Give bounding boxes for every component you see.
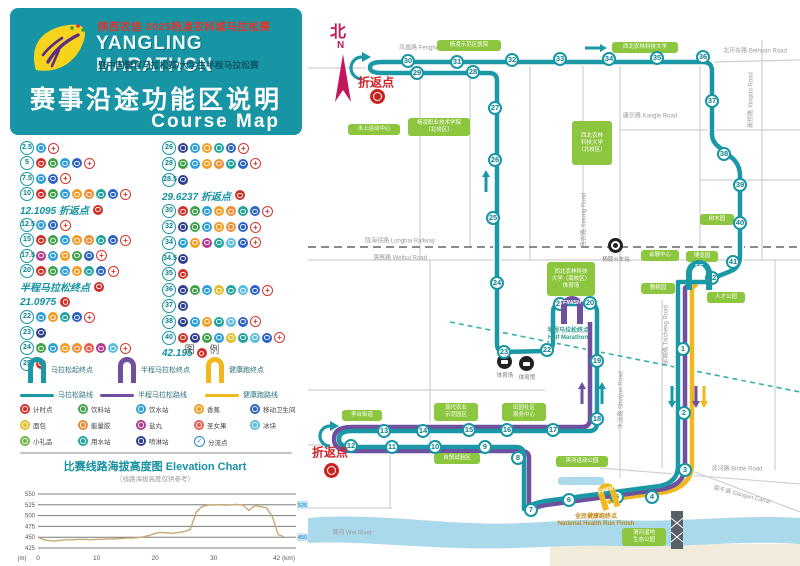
km-point-23: 23 [497, 345, 511, 359]
poi-label-box: 西北农林科技大学（南校区）体育场 [547, 262, 595, 296]
km-point-9: 9 [478, 440, 492, 454]
poi-label-line: 教稼园 [643, 285, 673, 292]
poi-label-line: 会展中心 [643, 252, 677, 259]
km-point-14: 14 [416, 424, 430, 438]
road-label: 邰城路 Taicheng Road [661, 305, 670, 365]
poi-label-line: 科技大学 [574, 140, 610, 147]
poi-label-line: 杨凌示范区医院 [439, 42, 499, 49]
km-point-17: 17 [546, 423, 560, 437]
km-point-31: 31 [450, 55, 464, 69]
poi-label-line: 杨凌职业技术学院 [410, 120, 468, 127]
finish-arch-text: S/F [687, 264, 711, 270]
north-arrow-icon [330, 52, 356, 104]
map-overlay: 水上运动中心杨凌职业技术学院（北校区）杨凌示范区医院西北农林科技大学西北农林科技… [0, 0, 800, 566]
km-point-35: 35 [650, 51, 664, 65]
poi-label-line: 生态公园 [624, 537, 664, 544]
poi-label-line: 大学（南校区） [549, 276, 593, 283]
north-label-n: N [337, 40, 344, 51]
poi-label-line: 人才公园 [709, 294, 743, 301]
km-point-41: 41 [726, 255, 740, 269]
km-point-34: 34 [602, 52, 616, 66]
poi-label-line: 自贸试验区 [436, 455, 478, 462]
finish-arch: FINISH [595, 481, 620, 511]
km-point-7: 7 [524, 503, 538, 517]
km-point-16: 16 [500, 423, 514, 437]
poi-label-box: 会展中心 [641, 250, 679, 261]
finish-arch: FINISH [561, 296, 583, 324]
road-label: 高干渠 Gaogan Canal [713, 483, 772, 506]
stadium-icon [519, 356, 534, 371]
km-point-28: 28 [466, 65, 480, 79]
turnaround-label: 折返点 [312, 444, 348, 461]
km-point-19: 19 [590, 354, 604, 368]
poi-label-line: 李台街道 [344, 412, 380, 419]
poi-label-line: 西北农林科技大学 [614, 44, 676, 51]
course-map-poster: 陕西农信·2025杨凌农科城马拉松赛 YANGLING MARATHON 暨中国… [0, 0, 800, 566]
poi-label-line: 博览园 [688, 253, 716, 260]
poi-label-line: 田园社区 [504, 405, 544, 412]
poi-label-box: 西北农林科技大学（北校区） [572, 121, 612, 165]
road-label: 西农路 Xinong Road [579, 193, 588, 247]
poi-label-box: 树木园 [700, 214, 734, 225]
poi-icon-label: 体育馆 [519, 373, 536, 381]
km-point-39: 39 [733, 178, 747, 192]
km-point-29: 29 [410, 66, 424, 80]
km-point-24: 24 [490, 276, 504, 290]
road-label: 北环东路 Beihuan Road [723, 46, 787, 55]
health-run-finish-label: 全民健康跑终点National Health Run Finish [558, 514, 634, 528]
poi-label-line: 西北农林 [574, 133, 610, 140]
turnaround-label: 折返点 [358, 74, 394, 91]
km-point-32: 32 [505, 53, 519, 67]
poi-label-box: 滨河运动公园 [556, 456, 608, 467]
km-point-40: 40 [733, 216, 747, 230]
poi-label-box: 自贸试验区 [434, 453, 480, 464]
finish-arch: S/F [686, 260, 712, 290]
km-point-11: 11 [385, 440, 399, 454]
poi-label-box: 杨凌示范区医院 [437, 40, 501, 51]
half-finish-line: Half Marathon [547, 335, 589, 342]
poi-label-box: 渭河湿地生态公园 [622, 528, 666, 546]
road-label: 滨河路 Binhe Road [711, 464, 762, 473]
finish-arch-text: FINISH [562, 300, 582, 306]
km-point-20: 20 [583, 296, 597, 310]
turnaround-timing-icon [324, 463, 339, 478]
road-label: 陇海铁路 Longhai Railway [365, 236, 435, 245]
road-label: 康乐路 Kangle Road [623, 111, 677, 120]
health-finish-line: 全民健康跑终点 [558, 514, 634, 521]
km-point-27: 27 [488, 101, 502, 115]
km-point-6: 6 [562, 493, 576, 507]
km-point-33: 33 [553, 52, 567, 66]
km-point-3: 3 [678, 463, 692, 477]
km-point-30: 30 [401, 54, 415, 68]
km-point-22: 22 [540, 343, 554, 357]
poi-label-line: 现代农业 [436, 405, 476, 412]
north-label-cn: 北 [330, 18, 346, 42]
km-point-25: 25 [486, 211, 500, 225]
km-point-1: 1 [676, 342, 690, 356]
poi-icon-label: 体育场 [497, 371, 514, 379]
poi-label-box: 人才公园 [707, 292, 745, 303]
km-point-4: 4 [645, 490, 659, 504]
finish-arch-text: FINISH [598, 485, 615, 496]
poi-label-line: 西北农林科技 [549, 269, 593, 276]
poi-label-line: （北校区） [410, 127, 468, 134]
poi-label-line: 树木园 [702, 216, 732, 223]
road-label: 新桥路 Xinqiao Road [746, 72, 755, 128]
poi-label-box: 现代农业示范园区 [434, 403, 478, 421]
poi-label-box: 水上运动中心 [348, 124, 400, 135]
km-point-38: 38 [717, 147, 731, 161]
poi-label-box: 李台街道 [342, 410, 382, 421]
km-point-36: 36 [696, 50, 710, 64]
km-point-18: 18 [590, 412, 604, 426]
health-finish-line: National Health Run Finish [558, 521, 634, 528]
half-marathon-finish-label: 半程马拉松终点Half Marathon [547, 328, 589, 342]
turnaround-timing-icon [370, 89, 385, 104]
poi-label-line: 体育场 [549, 283, 593, 290]
road-label: 渭河 Wei River [332, 528, 372, 537]
poi-label-line: （北校区） [574, 147, 610, 154]
poi-label-box: 教稼园 [641, 283, 675, 294]
km-point-37: 37 [705, 94, 719, 108]
half-finish-line: 半程马拉松终点 [547, 328, 589, 335]
poi-label-line: 服务中心 [504, 412, 544, 419]
poi-label-box: 西北农林科技大学 [612, 42, 678, 53]
km-point-8: 8 [511, 451, 525, 465]
poi-label-box: 田园社区服务中心 [502, 403, 546, 421]
station-icon [608, 238, 623, 253]
poi-label-box: 杨凌职业技术学院（北校区） [408, 118, 470, 136]
km-point-13: 13 [377, 424, 391, 438]
km-point-2: 2 [677, 406, 691, 420]
km-point-15: 15 [462, 423, 476, 437]
poi-label-line: 水上运动中心 [350, 126, 398, 133]
poi-label-line: 渭河湿地 [624, 530, 664, 537]
poi-icon-label: 杨陵火车站 [602, 255, 630, 263]
road-label: 渭惠路 Weihui Road [373, 253, 427, 262]
km-point-26: 26 [488, 153, 502, 167]
road-label: 水运路 Shuiyun Road [616, 371, 625, 428]
poi-label-line: 示范园区 [436, 412, 476, 419]
poi-label-line: 滨河运动公园 [558, 458, 606, 465]
km-point-10: 10 [428, 440, 442, 454]
